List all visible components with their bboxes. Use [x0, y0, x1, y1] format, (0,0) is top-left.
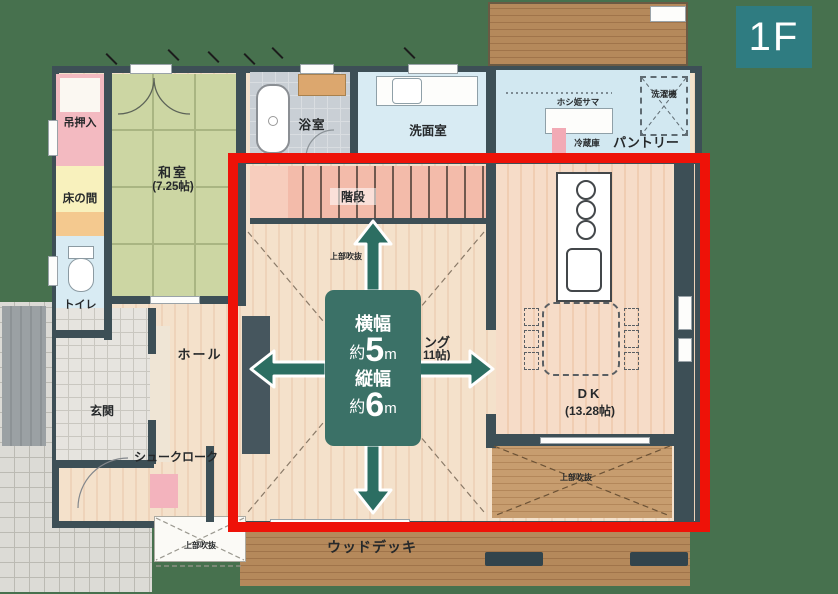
- floor-badge-1f: 1F: [736, 6, 812, 68]
- room-label-washroom: 洗面室: [396, 120, 460, 139]
- dimension-tick: [243, 53, 255, 65]
- window: [130, 64, 172, 74]
- red-highlight-frame: [228, 153, 710, 532]
- label-hoshihime: ホシ姫サマ: [546, 96, 610, 108]
- label-void-porch: 上部吹抜: [172, 540, 228, 551]
- room-label-pantry: パントリー: [606, 132, 686, 151]
- room-label-washitsu-size: (7.25帖): [129, 178, 217, 194]
- deck-post: [485, 552, 543, 566]
- height-approx: 約: [349, 400, 365, 419]
- dimension-tick: [271, 47, 283, 59]
- deck-vent: [650, 6, 686, 22]
- window: [150, 296, 200, 304]
- dimension-tick: [105, 53, 117, 65]
- height-number: 6: [365, 391, 384, 420]
- closet-pink: [150, 474, 178, 508]
- approach-slope: [2, 306, 46, 446]
- wall: [148, 308, 156, 354]
- label-wood-deck: ウッドデッキ: [326, 537, 418, 557]
- wall: [486, 66, 496, 162]
- label-washer: 洗濯機: [640, 88, 688, 100]
- label-fridge: 冷蔵庫: [566, 137, 608, 149]
- window: [48, 256, 58, 286]
- wall: [350, 66, 358, 162]
- bath-counter: [298, 74, 346, 96]
- wall: [52, 330, 112, 338]
- room-label-bathroom: 浴室: [282, 114, 342, 133]
- width-unit: m: [384, 347, 397, 365]
- room-label-toilet: トイレ: [54, 296, 106, 312]
- washer-space: [640, 76, 688, 136]
- window: [300, 64, 334, 74]
- dimension-annotation: 横幅 約 5 m 縦幅 約 6 m: [325, 290, 421, 446]
- width-number: 5: [365, 336, 384, 365]
- dimension-tick: [207, 51, 219, 63]
- height-unit: m: [384, 401, 397, 419]
- width-value: 約 5 m: [349, 336, 396, 365]
- bathtub-drain: [268, 116, 278, 126]
- width-approx: 約: [349, 346, 365, 365]
- vanity-basin: [392, 78, 422, 104]
- dimension-tick: [403, 47, 415, 59]
- room-label-tsuri-oshiire: 吊押入: [56, 114, 104, 130]
- floorplan-canvas: 吊押入 和室 (7.25帖) 床の間 トイレ 浴室 洗面室 ホシ姫サマ 洗濯機 …: [0, 0, 838, 594]
- closet-inner: [60, 78, 100, 112]
- room-label-shoe-cloak: シュークローク: [124, 448, 228, 465]
- window: [408, 64, 458, 74]
- room-label-hall: ホール: [172, 344, 228, 363]
- height-value: 約 6 m: [349, 391, 396, 420]
- tokonoma-step: [56, 212, 104, 236]
- dimension-tick: [167, 49, 179, 61]
- room-label-genkan: 玄関: [78, 402, 126, 419]
- deck-post: [630, 552, 688, 566]
- toilet-bowl-icon: [68, 258, 94, 292]
- room-label-tokonoma: 床の間: [56, 190, 104, 206]
